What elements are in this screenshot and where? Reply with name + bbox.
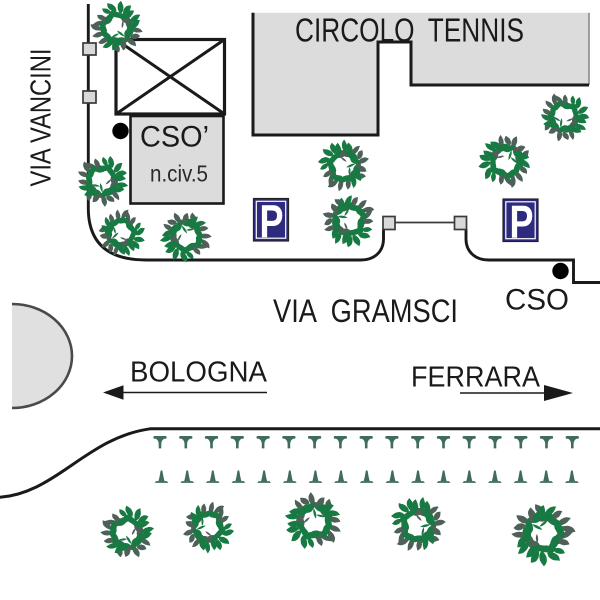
- svg-text:VIA GRAMSCI: VIA GRAMSCI: [273, 293, 458, 329]
- svg-text:VIA VANCINI: VIA VANCINI: [25, 49, 57, 187]
- svg-text:CSO: CSO: [505, 284, 569, 317]
- svg-text:FERRARA: FERRARA: [411, 362, 541, 394]
- svg-text:CSO’: CSO’: [140, 121, 209, 154]
- svg-text:BOLOGNA: BOLOGNA: [130, 357, 268, 389]
- svg-text:CIRCOLO TENNIS: CIRCOLO TENNIS: [295, 12, 524, 49]
- svg-text:P: P: [260, 195, 284, 247]
- svg-text:n.civ.5: n.civ.5: [150, 161, 208, 187]
- svg-text:P: P: [510, 196, 534, 248]
